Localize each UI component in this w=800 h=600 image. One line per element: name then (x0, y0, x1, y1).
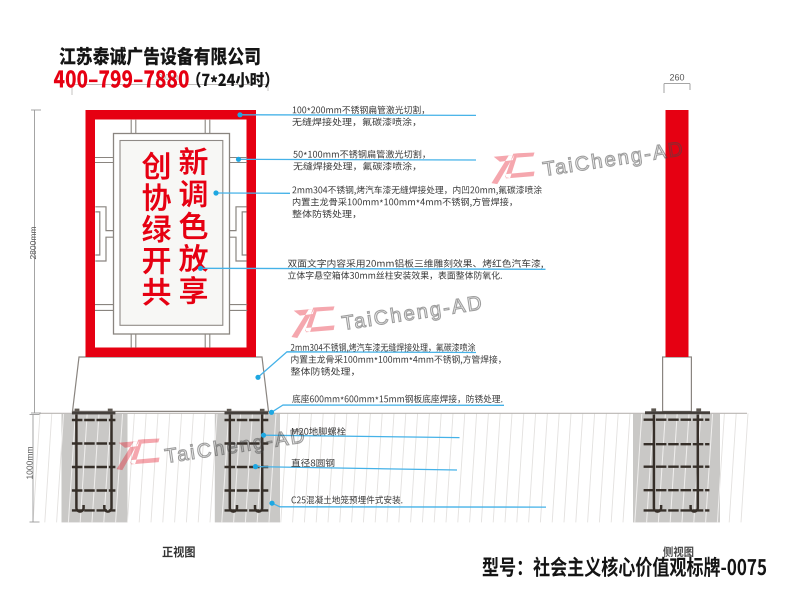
svg-text:2800mm: 2800mm (28, 226, 38, 259)
svg-text:1000mm: 1000mm (25, 446, 35, 479)
svg-text:260: 260 (669, 73, 684, 83)
